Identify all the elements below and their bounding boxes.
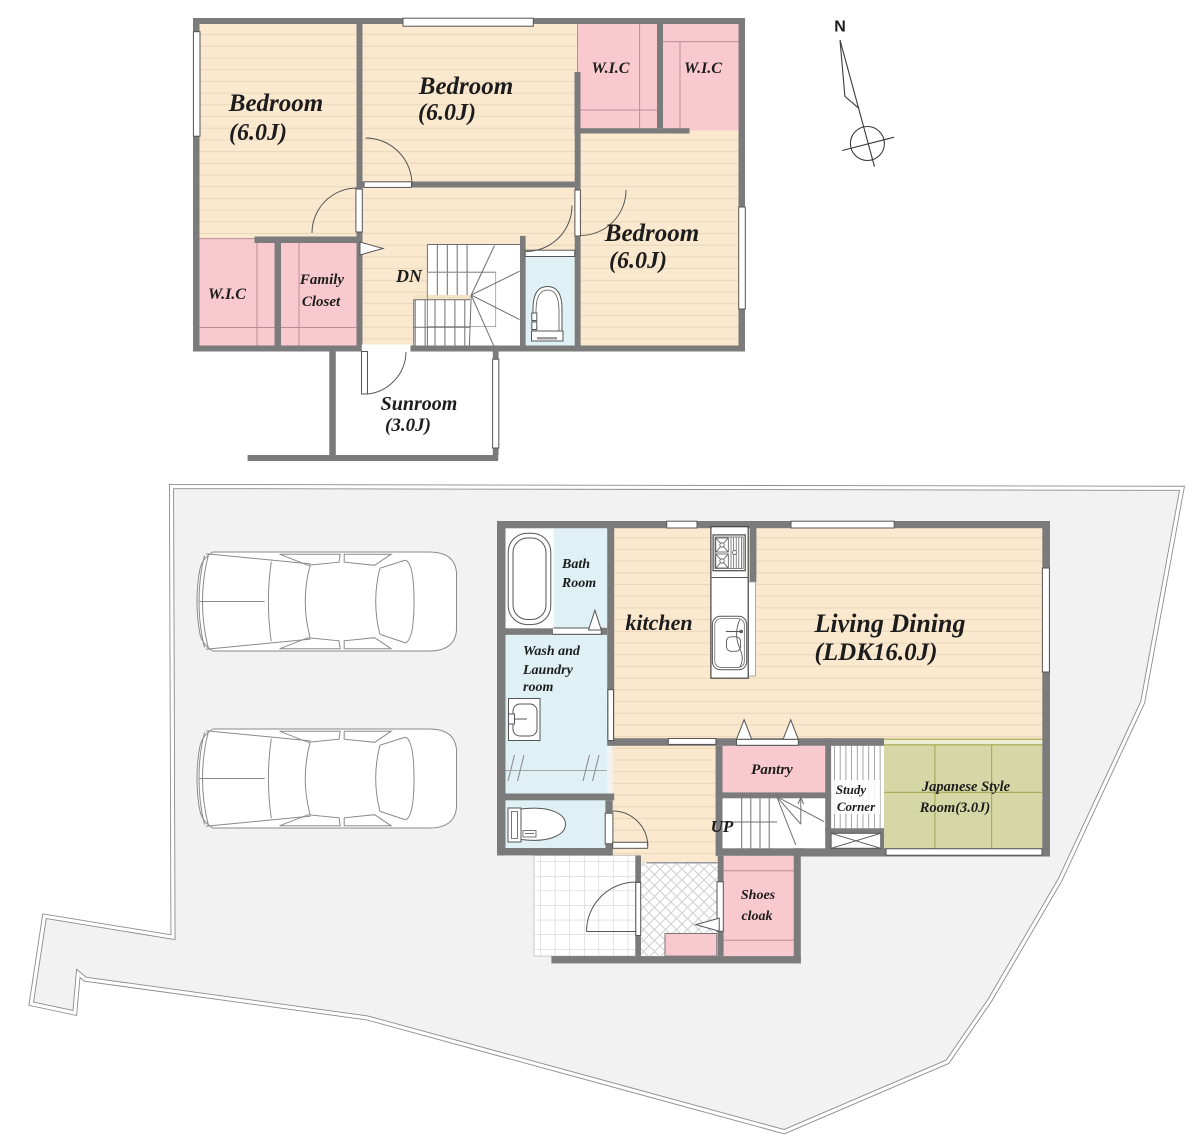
svg-text:Room(3.0J): Room(3.0J) xyxy=(919,800,990,816)
svg-text:Bedroom: Bedroom xyxy=(228,90,323,117)
svg-text:kitchen: kitchen xyxy=(625,610,692,635)
svg-text:(6.0J): (6.0J) xyxy=(609,248,667,274)
svg-text:Bedroom: Bedroom xyxy=(604,220,699,247)
svg-text:Pantry: Pantry xyxy=(751,762,793,778)
svg-text:Corner: Corner xyxy=(837,799,876,814)
svg-text:Family: Family xyxy=(299,272,345,288)
svg-text:Closet: Closet xyxy=(302,294,341,310)
svg-text:Wash and: Wash and xyxy=(523,644,581,659)
svg-text:cloak: cloak xyxy=(741,909,772,924)
svg-text:Laundry: Laundry xyxy=(522,663,574,678)
svg-text:Room: Room xyxy=(561,576,596,591)
svg-text:Living Dining: Living Dining xyxy=(814,609,966,638)
svg-text:Sunroom: Sunroom xyxy=(381,393,458,415)
svg-text:Study: Study xyxy=(836,782,867,797)
svg-text:Shoes: Shoes xyxy=(741,888,776,903)
svg-text:room: room xyxy=(523,680,553,695)
svg-text:(6.0J): (6.0J) xyxy=(229,120,287,146)
svg-text:W.I.C: W.I.C xyxy=(684,60,722,77)
svg-text:DN: DN xyxy=(395,266,423,286)
svg-text:Bath: Bath xyxy=(561,557,590,572)
svg-text:(6.0J): (6.0J) xyxy=(418,100,476,126)
svg-text:UP: UP xyxy=(711,817,734,836)
svg-text:(LDK16.0J): (LDK16.0J) xyxy=(815,639,938,666)
svg-text:N: N xyxy=(834,19,846,36)
svg-text:Japanese Style: Japanese Style xyxy=(921,779,1011,795)
svg-text:Bedroom: Bedroom xyxy=(418,73,513,100)
svg-text:(3.0J): (3.0J) xyxy=(385,415,431,436)
svg-text:W.I.C: W.I.C xyxy=(208,286,246,303)
svg-text:W.I.C: W.I.C xyxy=(592,60,630,77)
